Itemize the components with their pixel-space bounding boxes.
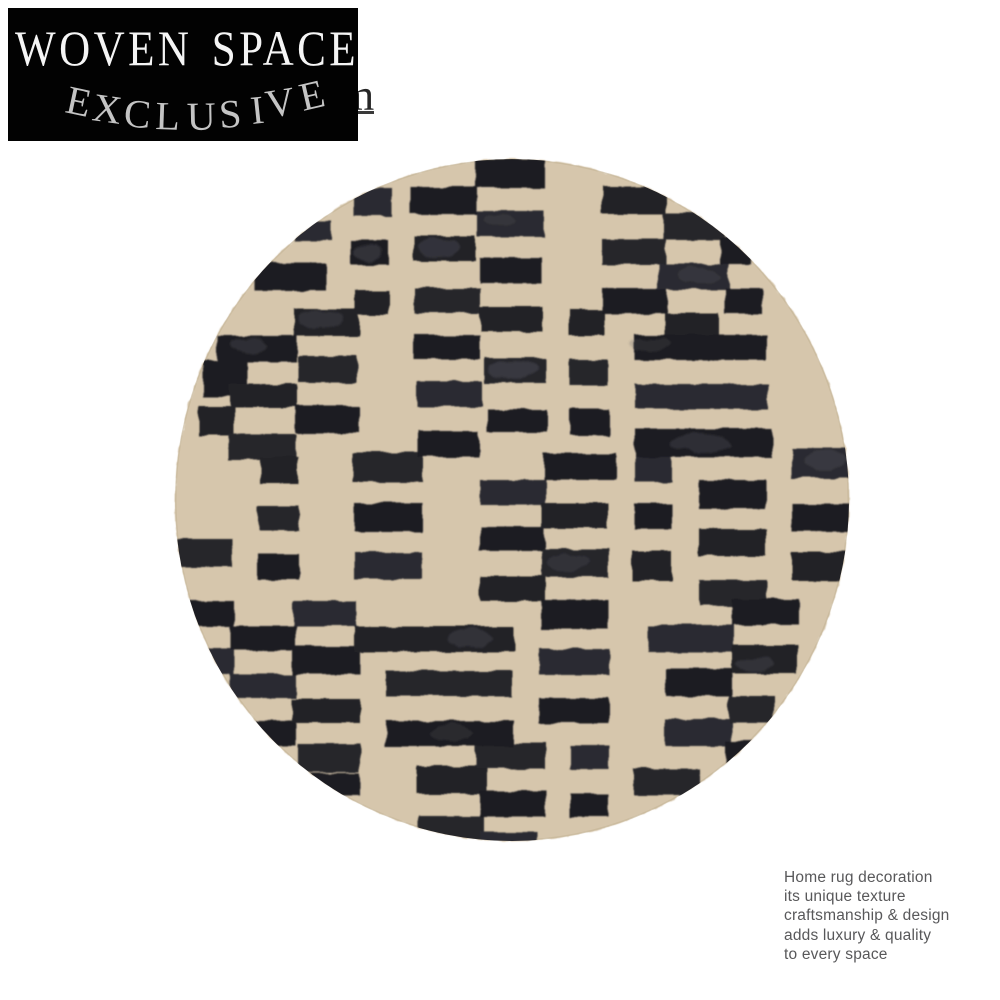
svg-text:U: U [186,93,216,138]
svg-text:WOVEN SPACE: WOVEN SPACE [15,20,359,76]
svg-text:C: C [122,90,153,137]
svg-text:S: S [217,91,242,137]
svg-text:L: L [155,93,181,139]
